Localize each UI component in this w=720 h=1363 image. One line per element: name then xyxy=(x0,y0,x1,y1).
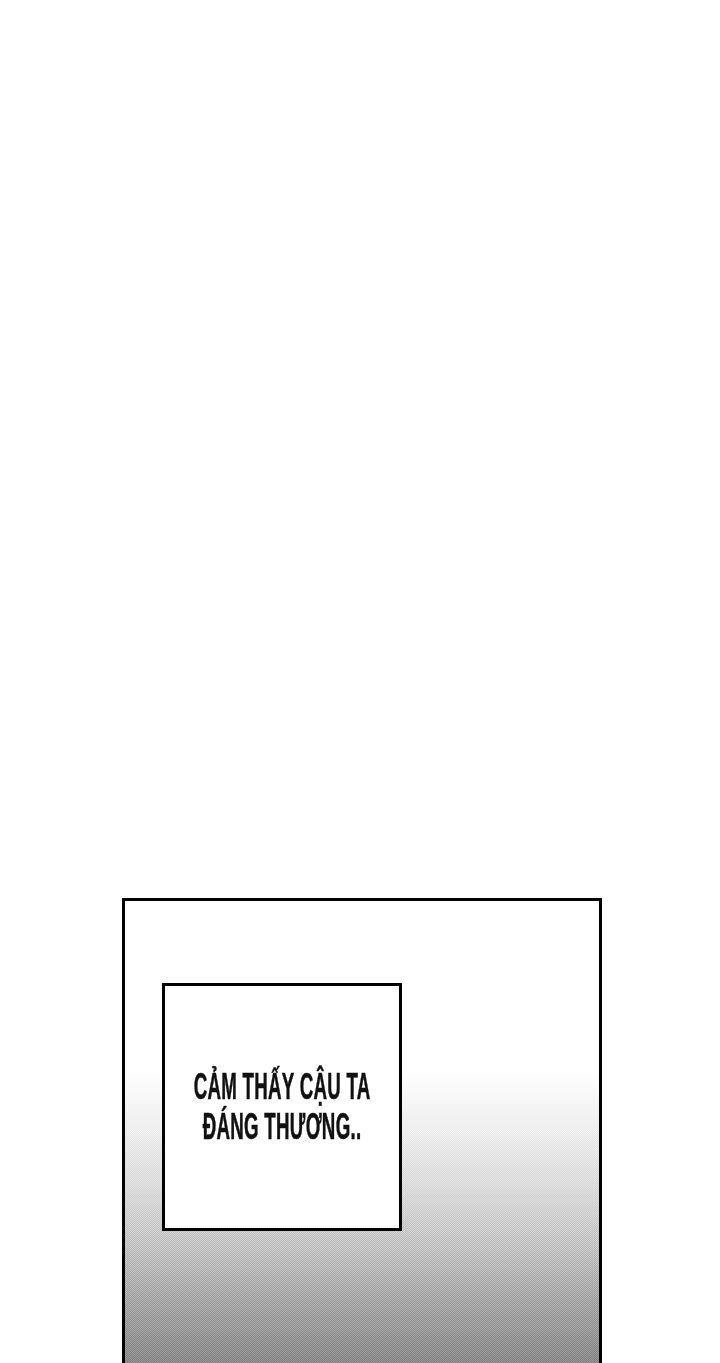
comic-page: CẢM THẤY CẬU TA ĐÁNG THƯƠNG.. xyxy=(0,0,720,1363)
caption-line-2: ĐÁNG THƯƠNG.. xyxy=(194,1107,371,1147)
caption-text: CẢM THẤY CẬU TA ĐÁNG THƯƠNG.. xyxy=(194,1067,371,1147)
comic-panel: CẢM THẤY CẬU TA ĐÁNG THƯƠNG.. xyxy=(122,898,602,1363)
caption-box: CẢM THẤY CẬU TA ĐÁNG THƯƠNG.. xyxy=(162,983,402,1231)
caption-line-1: CẢM THẤY CẬU TA xyxy=(194,1067,371,1107)
